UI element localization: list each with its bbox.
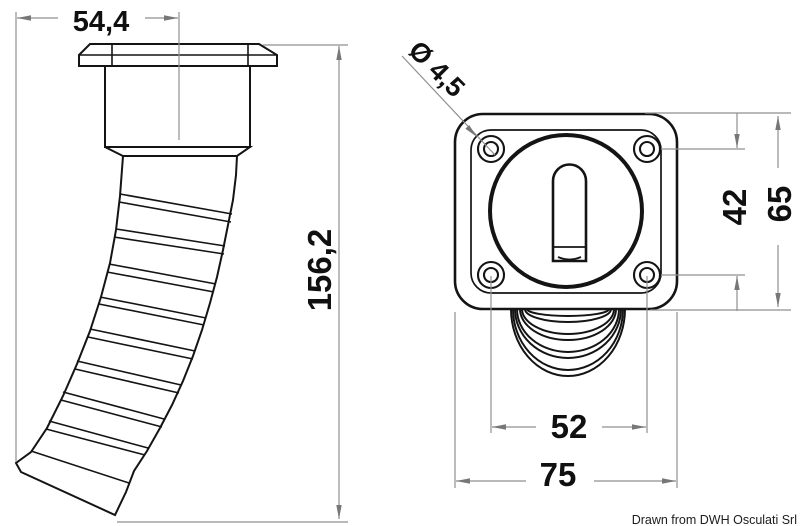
- dimension-hole-spacing-horizontal-label: 52: [551, 408, 588, 445]
- dimension-hole-spacing-vertical-label: 42: [716, 189, 753, 226]
- screw-hole-top-left: [478, 136, 504, 162]
- drawing-canvas: 54,4 156,2 Ø 4,5 42: [0, 0, 800, 526]
- cap-body: [105, 66, 250, 147]
- dimension-overall-width-label: 54,4: [73, 6, 129, 38]
- side-view-deck-filler: [16, 12, 277, 515]
- dimension-flange-height-label: 65: [761, 186, 798, 223]
- cap-skirt: [105, 147, 250, 156]
- dimension-overall-height-label: 156,2: [301, 229, 338, 312]
- credit-text: Drawn from DWH Osculati Srl: [632, 513, 797, 526]
- screw-hole-top-right: [634, 136, 660, 162]
- top-view-deck-plate: [455, 114, 677, 376]
- hose-outline: [16, 156, 237, 515]
- dimension-flange-width-label: 75: [540, 456, 577, 493]
- technical-drawing: 54,4 156,2 Ø 4,5 42: [0, 0, 800, 526]
- key-slot: [553, 165, 586, 262]
